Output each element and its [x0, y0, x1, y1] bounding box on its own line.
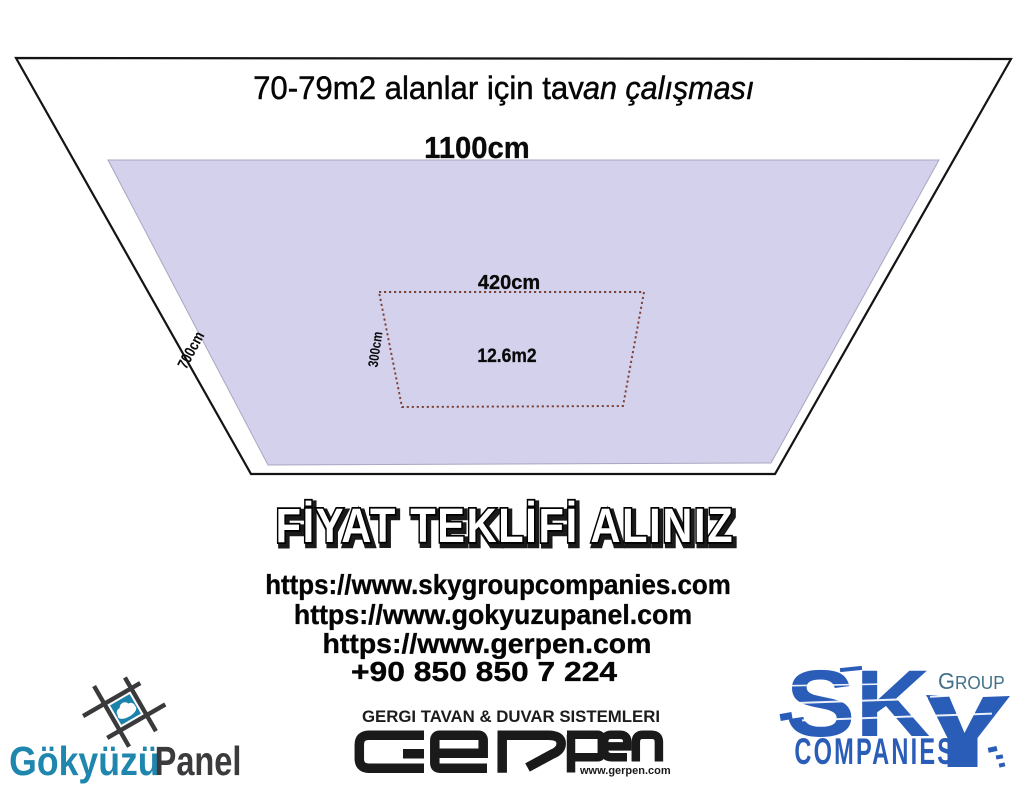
svg-text:https://www.gokyuzupanel.com: https://www.gokyuzupanel.com — [294, 598, 692, 630]
svg-text:Panel: Panel — [155, 739, 242, 784]
svg-text:GERGI TAVAN & DUVAR SISTEMLERI: GERGI TAVAN & DUVAR SISTEMLERI — [362, 707, 660, 726]
svg-text:COMPANIES: COMPANIES — [794, 730, 955, 772]
svg-text:www.gerpen.com: www.gerpen.com — [579, 765, 671, 777]
svg-text:FİYAT TEKLİFİ ALINIZ: FİYAT TEKLİFİ ALINIZ — [276, 498, 735, 553]
svg-text:https://www.skygroupcompanies.: https://www.skygroupcompanies.com — [265, 569, 731, 600]
svg-text:https://www.gerpen.com: https://www.gerpen.com — [323, 627, 652, 659]
svg-text:Gökyüzü: Gökyüzü — [9, 739, 159, 785]
svg-text:an çalışması: an çalışması — [583, 69, 754, 106]
svg-text:70-79m2 alanlar için tav: 70-79m2 alanlar için tav — [253, 69, 584, 106]
svg-text:+90 850 850 7 224: +90 850 850 7 224 — [351, 657, 617, 688]
svg-text:12.6m2: 12.6m2 — [477, 344, 536, 366]
svg-text:420cm: 420cm — [478, 272, 540, 294]
